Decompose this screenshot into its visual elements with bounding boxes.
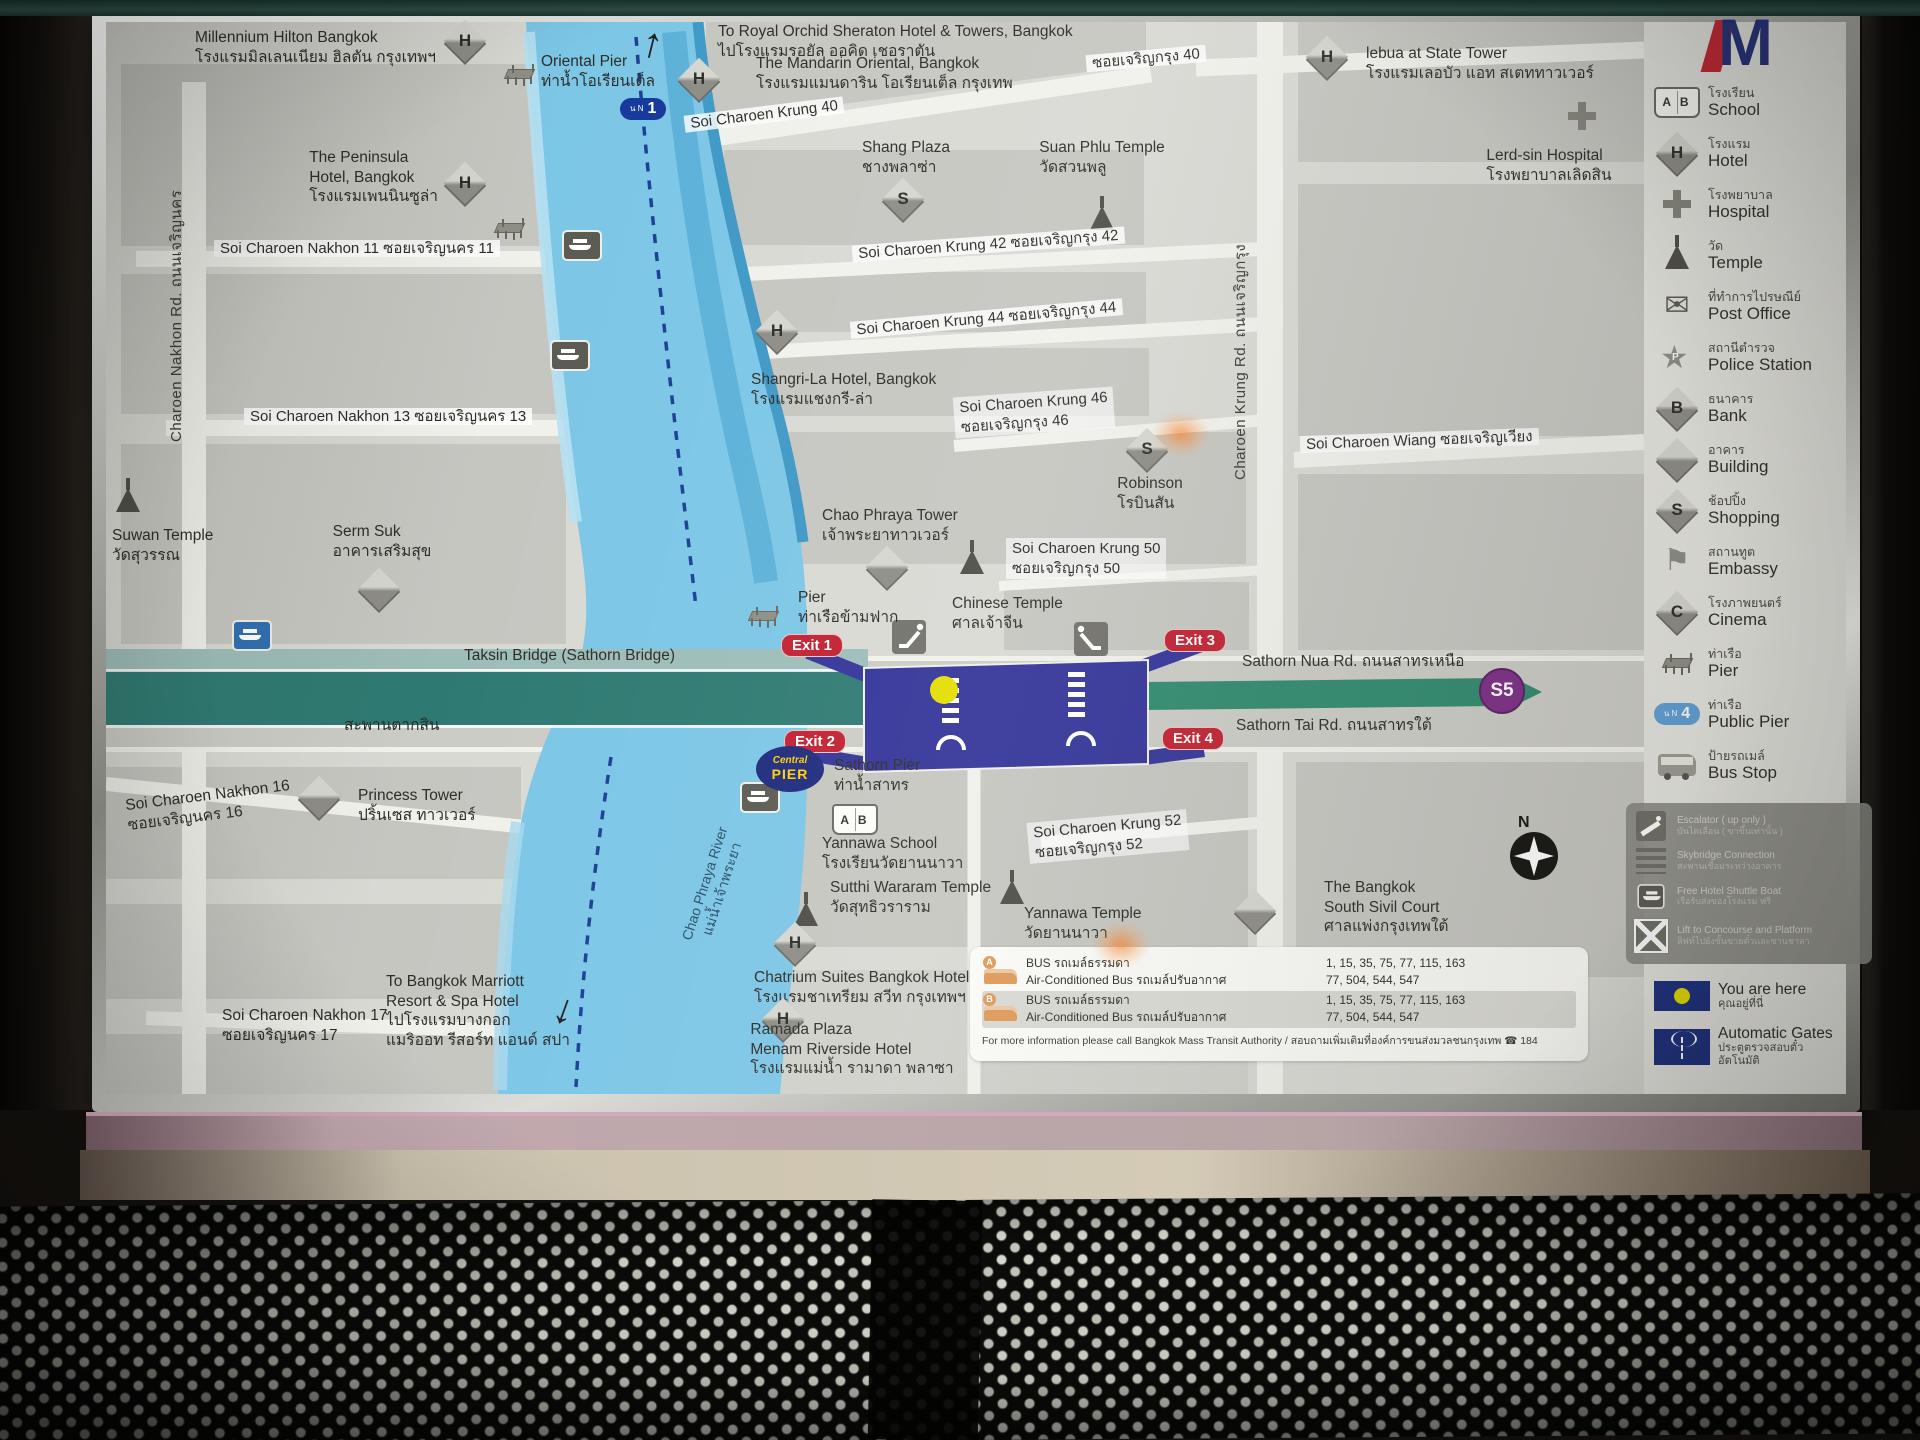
you-are-here-label-th: คุณอยู่ที่นี่ bbox=[1718, 998, 1806, 1011]
legend-label-th: โรงเรียน bbox=[1708, 86, 1760, 100]
hotel-icon bbox=[444, 20, 486, 62]
temple-icon bbox=[794, 898, 818, 926]
soi-charoen-nakhon-17-label: Soi Charoen Nakhon 17 ซอยเจริญนคร 17 bbox=[222, 1006, 387, 1045]
legend-item-hospital: โรงพยาบาลHospital bbox=[1654, 182, 1842, 226]
ac-bus-label: Air-Conditioned Bus รถเมล์ปรับอากาศ bbox=[1026, 1009, 1326, 1026]
photo-left-edge bbox=[0, 10, 92, 1110]
bus-routes: 1, 15, 35, 75, 77, 115, 163 bbox=[1326, 955, 1576, 972]
legend-label-th: โรงแรม bbox=[1708, 137, 1751, 151]
station-map-photo: Millennium Hilton Bangkok โรงแรมมิลเลนเน… bbox=[0, 0, 1920, 1440]
shang-plaza-label: Shang Plaza ชางพลาซ่า bbox=[862, 138, 950, 177]
serm-suk-label: Serm Suk อาคารเสริมสุข bbox=[333, 522, 432, 561]
legend-item-cinema: โรงภาพยนตร์Cinema bbox=[1654, 590, 1842, 634]
legend-label-th: ที่ทำการไปรษณีย์ bbox=[1708, 290, 1801, 304]
legend-info-label-th: เรือรับส่งของโรงแรม ฟรี bbox=[1677, 897, 1781, 907]
legend-label-en: Hospital bbox=[1708, 203, 1773, 220]
legend-label-th: โรงภาพยนตร์ bbox=[1708, 596, 1782, 610]
legend-info-label-th: บันไดเลื่อน ( ขาขึ้นเท่านั้น ) bbox=[1677, 827, 1783, 837]
temple-icon bbox=[116, 484, 140, 512]
sathorn-pier-label: Sathorn Pier ท่าน้ำสาทร bbox=[834, 756, 920, 795]
legend-label-th: ธนาคาร bbox=[1708, 392, 1753, 406]
you-are-here-label: You are here bbox=[1718, 982, 1806, 998]
wall-strip bbox=[86, 1112, 1862, 1150]
publicpier-icon bbox=[1654, 703, 1700, 725]
line-badge-s5: S5 bbox=[1479, 668, 1525, 714]
cinema-icon bbox=[1656, 591, 1698, 633]
legend-label-th: ป้ายรถเมล์ bbox=[1708, 749, 1777, 763]
legend-label-en: Bus Stop bbox=[1708, 764, 1777, 781]
legend-label-en: Post Office bbox=[1708, 305, 1801, 322]
legend-label-en: Public Pier bbox=[1708, 713, 1789, 730]
bus-label: BUS รถเมล์ธรรมดา bbox=[1026, 992, 1326, 1009]
automatic-gates-row: Automatic Gates ประตูตรวจสอบตั๋วอัตโนมัต… bbox=[1654, 1025, 1842, 1069]
ramada-plaza-label: Ramada Plaza Menam Riverside Hotel โรงแร… bbox=[750, 1020, 953, 1079]
temple-icon bbox=[960, 546, 984, 574]
legend-info-escalator: Escalator ( up only )บันไดเลื่อน ( ขาขึ้… bbox=[1634, 811, 1864, 841]
taksin-bridge-th-label: สะพานตากสิน bbox=[344, 716, 440, 736]
legend-label-en: Hotel bbox=[1708, 152, 1751, 169]
temple-icon bbox=[1090, 202, 1114, 230]
legend-item-bus-stop: ป้ายรถเมล์Bus Stop bbox=[1654, 743, 1842, 787]
hotel-icon bbox=[774, 922, 816, 964]
legend-info-box: Escalator ( up only )บันไดเลื่อน ( ขาขึ้… bbox=[1626, 803, 1872, 964]
legend-label-th: ช้อปปิ้ง bbox=[1708, 494, 1780, 508]
suan-phlu-temple-label: Suan Phlu Temple วัดสวนพลู bbox=[1039, 138, 1165, 177]
map-panel: Millennium Hilton Bangkok โรงแรมมิลเลนเน… bbox=[106, 22, 1846, 1094]
hotel-icon bbox=[444, 162, 486, 204]
legend-item-post-office: ที่ทำการไปรษณีย์Post Office bbox=[1654, 284, 1842, 328]
legend-label-th: โรงพยาบาล bbox=[1708, 188, 1773, 202]
shopping-icon bbox=[1656, 489, 1698, 531]
temple-icon bbox=[1000, 876, 1024, 904]
bus-info-row-a: BUS รถเมล์ธรรมดา Air-Conditioned Bus รถเ… bbox=[982, 954, 1576, 991]
hospital-icon bbox=[1568, 102, 1596, 130]
legend-label-th: อาคาร bbox=[1708, 443, 1769, 457]
automatic-gates-label: Automatic Gates bbox=[1718, 1026, 1842, 1042]
legend-info-lift: Lift to Concourse and Platformลิฟท์ไปยัง… bbox=[1634, 919, 1864, 953]
hotel-icon bbox=[1656, 132, 1698, 174]
charoen-nakhon-road-label: Charoen Nakhon Rd. ถนนเจริญนคร bbox=[164, 190, 188, 442]
south-civil-court-label: The Bangkok South Sivil Court ศาลแพ่งกรุ… bbox=[1324, 878, 1448, 937]
busstop-icon bbox=[1658, 754, 1696, 776]
shopping-icon bbox=[882, 178, 924, 220]
bus-info-footer: For more information please call Bangkok… bbox=[982, 1032, 1576, 1049]
you-are-here-icon bbox=[1654, 981, 1710, 1011]
ac-bus-routes: 77, 504, 544, 547 bbox=[1326, 1009, 1576, 1026]
shangri-la-hotel-label: Shangri-La Hotel, Bangkok โรงแรมแชงกรี-ล… bbox=[751, 370, 936, 409]
escalator-icon bbox=[1636, 811, 1666, 841]
you-are-here-row: You are here คุณอยู่ที่นี่ bbox=[1654, 974, 1842, 1018]
wall-strip-lower bbox=[80, 1150, 1870, 1200]
legend-label-th: วัด bbox=[1708, 239, 1763, 253]
soi-charoen-nakhon-11-label: Soi Charoen Nakhon 11 ซอยเจริญนคร 11 bbox=[214, 240, 500, 257]
hotel-icon bbox=[1306, 36, 1348, 78]
ferry-pier-icon bbox=[562, 230, 602, 261]
mandarin-oriental-label: The Mandarin Oriental, Bangkok โรงแรมแมน… bbox=[756, 54, 1013, 93]
automatic-gates-label-th: ประตูตรวจสอบตั๋วอัตโนมัติ bbox=[1718, 1042, 1842, 1067]
automatic-gates-icon bbox=[1654, 1029, 1710, 1065]
legend-info-skybridge: Skybridge Connectionสะพานเชื่อมระหว่างอา… bbox=[1634, 848, 1864, 874]
legend-label-en: Cinema bbox=[1708, 611, 1782, 628]
bank-icon bbox=[1656, 387, 1698, 429]
bus-routes: 1, 15, 35, 75, 77, 115, 163 bbox=[1326, 992, 1576, 1009]
compass-rose: N bbox=[1504, 816, 1564, 888]
legend-label-en: Police Station bbox=[1708, 356, 1812, 373]
central-pier-badge: CentralPIER bbox=[756, 746, 824, 792]
exit-4-badge: Exit 4 bbox=[1162, 727, 1224, 750]
school-icon bbox=[1654, 87, 1700, 118]
legend-info-label-th: ลิฟท์ไปยังชั้นขายตั๋วและชานชาลา bbox=[1677, 937, 1812, 947]
postoffice-icon bbox=[1664, 292, 1689, 320]
photo-top-edge bbox=[0, 0, 1920, 16]
soi-charoen-krung-50-label: Soi Charoen Krung 50 ซอยเจริญกรุง 50 bbox=[1006, 538, 1166, 579]
exit-1-badge: Exit 1 bbox=[781, 634, 843, 657]
bus-icon bbox=[982, 958, 1020, 986]
pier-icon bbox=[748, 606, 778, 626]
temple-icon bbox=[1665, 241, 1689, 269]
building-icon bbox=[866, 546, 908, 588]
lebua-state-tower-label: lebua at State Tower โรงแรมเลอบัว แอท สเ… bbox=[1366, 44, 1594, 83]
legend-item-police-station: สถานีตำรวจPolice Station bbox=[1654, 335, 1842, 379]
chinese-temple-label: Chinese Temple ศาลเจ้าจีน bbox=[952, 594, 1063, 633]
charoen-krung-road-label: Charoen Krung Rd. ถนนเจริญกรุง bbox=[1228, 244, 1252, 480]
pier-badge-n1 bbox=[620, 98, 666, 120]
legend-label-th: ท่าเรือ bbox=[1708, 698, 1789, 712]
sathorn-tai-road-label: Sathorn Tai Rd. ถนนสาทรใต้ bbox=[1236, 716, 1432, 736]
pier-sign-icon bbox=[232, 620, 272, 651]
ferry-pier-icon bbox=[550, 340, 590, 371]
legend-label-th: ท่าเรือ bbox=[1708, 647, 1742, 661]
bus-label: BUS รถเมล์ธรรมดา bbox=[1026, 955, 1326, 972]
school-icon bbox=[832, 804, 878, 835]
legend-item-pier: ท่าเรือPier bbox=[1654, 641, 1842, 685]
legend-item-hotel: โรงแรมHotel bbox=[1654, 131, 1842, 175]
legend-label-th: สถานีตำรวจ bbox=[1708, 341, 1812, 355]
bus-info-row-b: BUS รถเมล์ธรรมดา Air-Conditioned Bus รถเ… bbox=[982, 991, 1576, 1028]
skybridge-icon bbox=[1636, 848, 1666, 874]
building-icon bbox=[358, 568, 400, 610]
millennium-hilton-hotel-label: Millennium Hilton Bangkok โรงแรมมิลเลนเน… bbox=[195, 28, 436, 67]
building-icon bbox=[1656, 438, 1698, 480]
legend-item-building: อาคารBuilding bbox=[1654, 437, 1842, 481]
legend-label-en: Building bbox=[1708, 458, 1769, 475]
ac-bus-label: Air-Conditioned Bus รถเมล์ปรับอากาศ bbox=[1026, 972, 1326, 989]
hotel-icon bbox=[756, 310, 798, 352]
legend-label-th: สถานทูต bbox=[1708, 545, 1778, 559]
you-are-here-dot bbox=[930, 676, 958, 704]
legend-label-en: Bank bbox=[1708, 407, 1753, 424]
soi-charoen-nakhon-13-label: Soi Charoen Nakhon 13 ซอยเจริญนคร 13 bbox=[244, 408, 532, 425]
legend-label-en: School bbox=[1708, 101, 1760, 118]
legend-item-bank: ธนาคารBank bbox=[1654, 386, 1842, 430]
legend-item-public-pier: ท่าเรือPublic Pier bbox=[1654, 692, 1842, 736]
legend-label-en: Pier bbox=[1708, 662, 1742, 679]
legend-items: โรงเรียนSchoolโรงแรมHotelโรงพยาบาลHospit… bbox=[1654, 80, 1842, 787]
bts-logo-m: M bbox=[1718, 12, 1768, 72]
building-icon bbox=[1234, 890, 1276, 932]
police-icon bbox=[1660, 341, 1694, 373]
perforated-panel bbox=[0, 1193, 1920, 1440]
bts-logo: M bbox=[1700, 12, 1804, 76]
lerd-sin-hospital-label: Lerd-sin Hospital โรงพยาบาลเลิดสิน bbox=[1486, 146, 1611, 185]
legend-info-label-th: สะพานเชื่อมระหว่างอาคาร bbox=[1677, 862, 1781, 872]
legend: โรงเรียนSchoolโรงแรมHotelโรงพยาบาลHospit… bbox=[1654, 80, 1842, 1076]
lift-icon bbox=[1634, 919, 1668, 953]
building-icon bbox=[298, 776, 340, 818]
hotel-icon bbox=[678, 58, 720, 100]
shuttleboat-icon bbox=[1637, 884, 1664, 909]
legend-label-en: Embassy bbox=[1708, 560, 1778, 577]
legend-item-temple: วัดTemple bbox=[1654, 233, 1842, 277]
sutthi-wararam-temple-label: Sutthi Wararam Temple วัดสุทธิวราราม bbox=[830, 878, 991, 917]
legend-item-embassy: สถานทูตEmbassy bbox=[1654, 539, 1842, 583]
robinson-label: Robinson โรบินสัน bbox=[1117, 474, 1183, 513]
princess-tower-label: Princess Tower ปริ้นเซส ทาวเวอร์ bbox=[358, 786, 476, 825]
suwan-temple-label: Suwan Temple วัดสุวรรณ bbox=[112, 526, 213, 565]
legend-item-shopping: ช้อปปิ้งShopping bbox=[1654, 488, 1842, 532]
legend-item-school: โรงเรียนSchool bbox=[1654, 80, 1842, 124]
reflection-glare bbox=[1152, 412, 1210, 456]
reflection-glare bbox=[1092, 922, 1150, 966]
legend-label-en: Shopping bbox=[1708, 509, 1780, 526]
taksin-bridge-label: Taksin Bridge (Sathorn Bridge) bbox=[464, 646, 675, 666]
chao-phraya-tower-label: Chao Phraya Tower เจ้าพระยาทาวเวอร์ bbox=[822, 506, 958, 545]
sign-frame: Millennium Hilton Bangkok โรงแรมมิลเลนเน… bbox=[92, 8, 1860, 1112]
pier-icon bbox=[504, 64, 534, 84]
sathorn-nua-road-label: Sathorn Nua Rd. ถนนสาทรเหนือ bbox=[1242, 652, 1464, 672]
pier-icon bbox=[1662, 653, 1692, 673]
hospital-icon bbox=[1663, 190, 1691, 218]
legend-info-shuttleboat: Free Hotel Shuttle Boatเรือรับส่งของโรงแ… bbox=[1634, 881, 1864, 912]
bus-icon bbox=[982, 995, 1020, 1023]
legend-label-en: Temple bbox=[1708, 254, 1763, 271]
bus-info-box: BUS รถเมล์ธรรมดา Air-Conditioned Bus รถเ… bbox=[970, 947, 1588, 1061]
yannawa-school-label: Yannawa School โรงเรียนวัดยานนาวา bbox=[822, 834, 963, 873]
ferry-crossing-pier-label: Pier ท่าเรือข้ามฟาก bbox=[798, 588, 898, 627]
embassy-icon bbox=[1664, 547, 1691, 575]
peninsula-hotel-label: The Peninsula Hotel, Bangkok โรงแรมเพนนิ… bbox=[309, 148, 438, 207]
bangkok-marriott-label: To Bangkok Marriott Resort & Spa Hotel ไ… bbox=[386, 972, 570, 1050]
pier-icon bbox=[494, 218, 524, 238]
exit-3-badge: Exit 3 bbox=[1164, 629, 1226, 652]
ac-bus-routes: 77, 504, 544, 547 bbox=[1326, 972, 1576, 989]
